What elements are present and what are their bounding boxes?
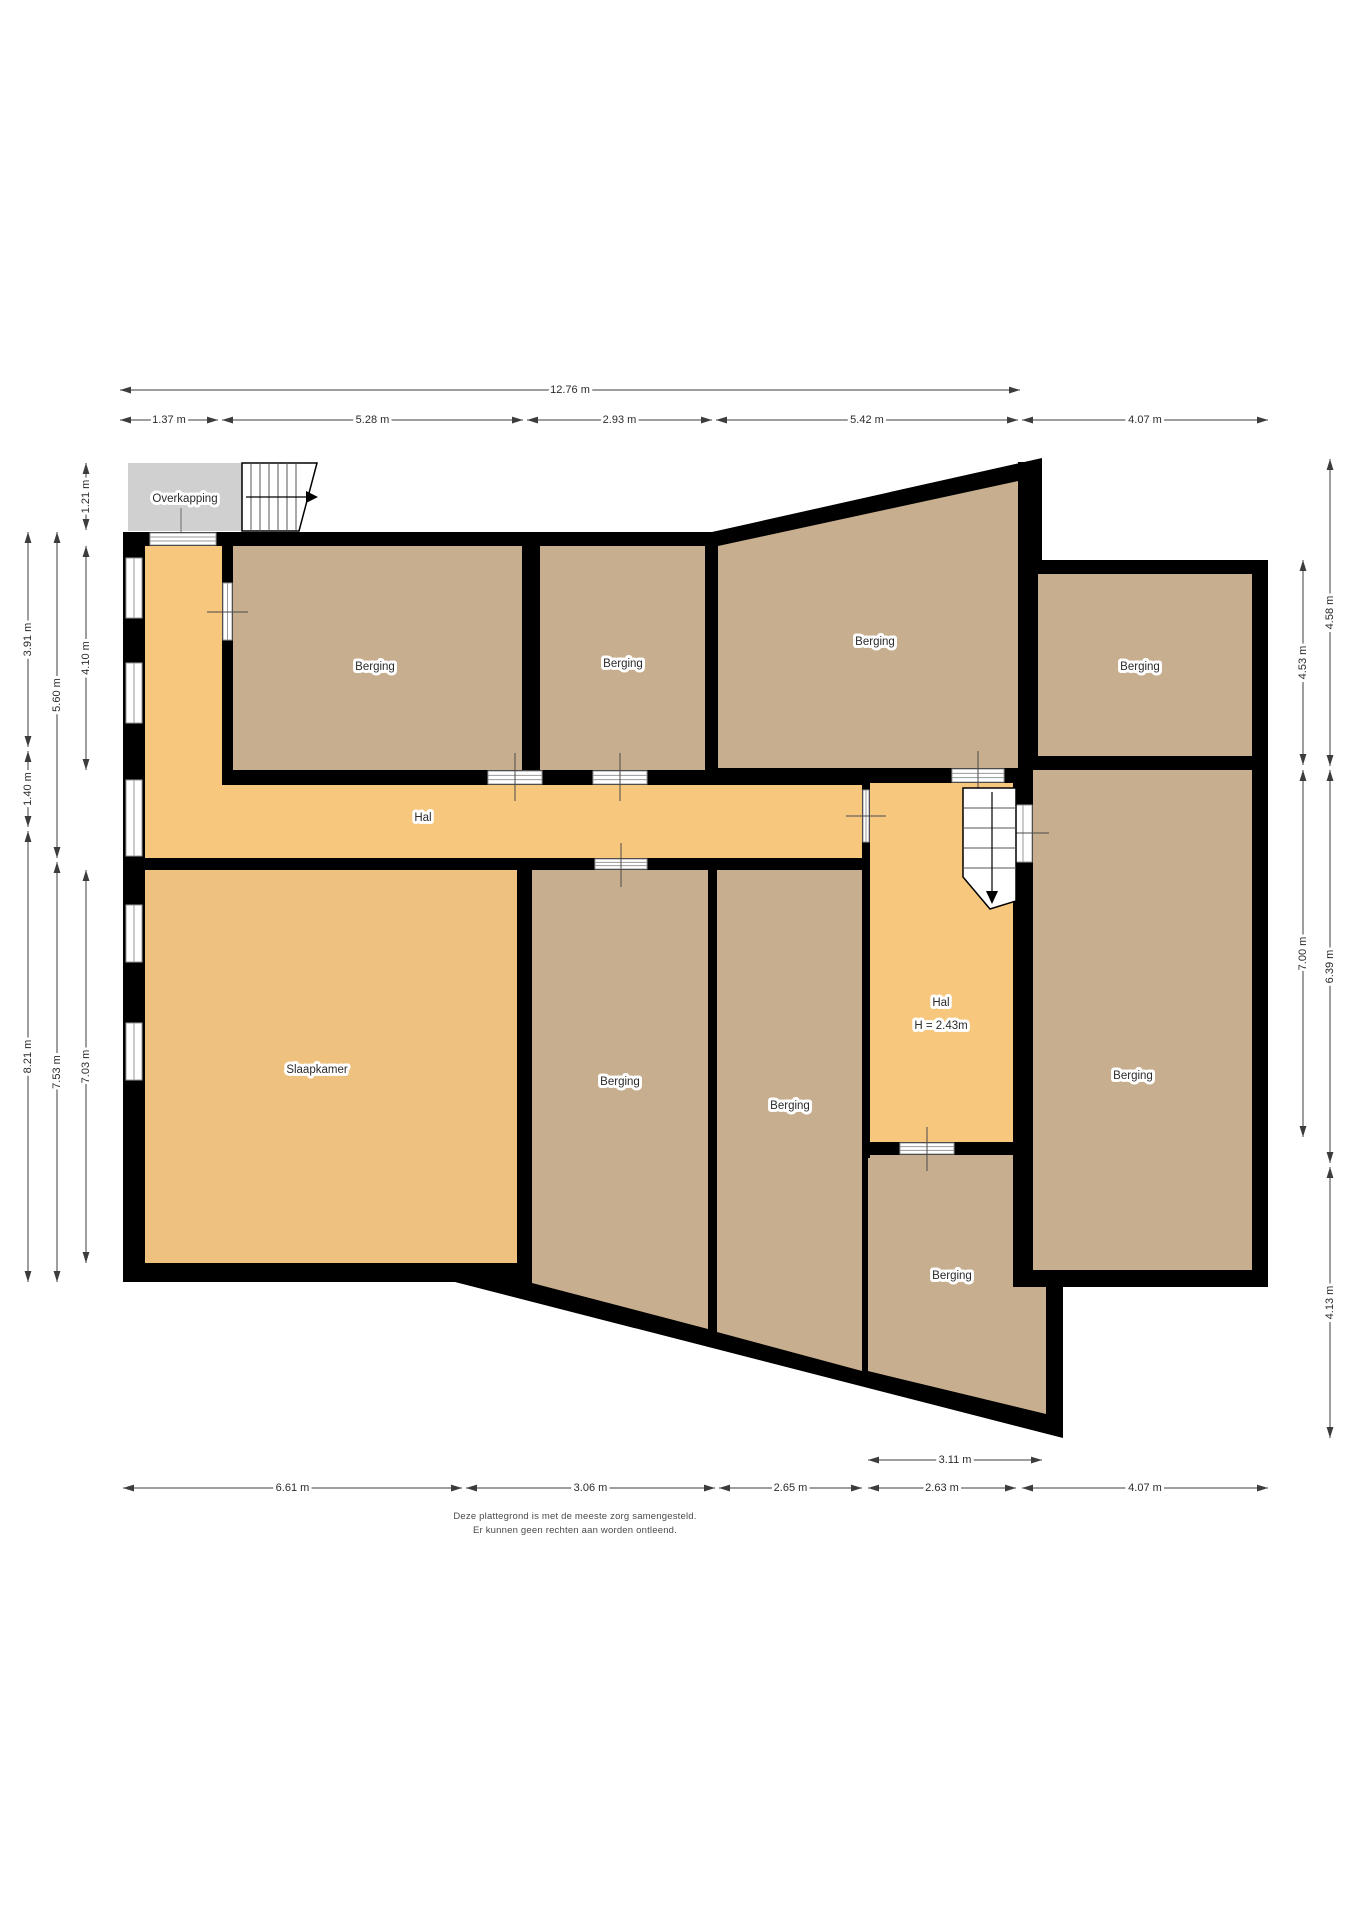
dim-left-391-arrow-bottom	[25, 736, 32, 747]
dim-bottom-4-label-arrow-right	[1005, 1485, 1016, 1492]
dim-bottom-311-label-arrow-right	[1031, 1457, 1042, 1464]
dim-bottom-5-label: 4.07 m	[1128, 1482, 1162, 1494]
dim-top-2-arrow-left	[222, 417, 233, 424]
dim-left-140-arrow-bottom	[25, 816, 32, 827]
dim-bottom-3-arrow-left	[719, 1485, 730, 1492]
dim-left-121-label: 1.21 m	[80, 480, 92, 514]
footer-disclaimer-line1: Deze plattegrond is met de meeste zorg s…	[0, 1511, 1150, 1522]
dim-right-453-arrow-bottom	[1300, 754, 1307, 765]
dim-bottom-5-arrow-left	[1022, 1485, 1033, 1492]
room-berging-center-label: Berging	[600, 1076, 640, 1088]
dim-left-703-arrow-bottom	[83, 1252, 90, 1263]
floorplan-svg: BergingBergingBergingBergingBergingHalHa…	[0, 0, 1358, 1920]
room-berging-right-middle-label: Berging	[1113, 1070, 1153, 1082]
room-berging-top-left-label: Berging	[355, 661, 395, 673]
stairs-entrance-direction-arrowhead	[306, 491, 318, 503]
dim-left-560-arrow-bottom	[54, 847, 61, 858]
dim-left-560-label: 5.60 m	[51, 678, 63, 712]
dim-top-1-label: 1.37 m	[152, 414, 186, 426]
dim-right-413-label: 4.13 m	[1324, 1286, 1336, 1320]
dim-right-413-arrow-top	[1327, 1167, 1334, 1178]
dim-left-140-arrow-top	[25, 751, 32, 762]
dim-left-821-arrow-top	[25, 831, 32, 842]
wall-b2-sloped	[705, 546, 718, 785]
room-hal-stairwell-label2: H = 2.43m	[914, 1020, 967, 1032]
overkapping-label: Overkapping	[152, 493, 217, 505]
room-slaapkamer-label: Slaapkamer	[286, 1064, 348, 1076]
wall-rightmiddle-bottom	[1013, 1270, 1268, 1287]
dim-left-753-arrow-bottom	[54, 1271, 61, 1282]
dim-bottom-3-label-arrow-right	[851, 1485, 862, 1492]
dim-top-4-label-arrow-right	[1007, 417, 1018, 424]
dim-right-700-label: 7.00 m	[1297, 937, 1309, 971]
dim-bottom-3-label: 2.65 m	[774, 1482, 808, 1494]
room-hal-corridor-label: Hal	[414, 812, 431, 824]
wall-corridor-bottom	[145, 858, 870, 870]
room-berging-right-middle	[1033, 770, 1252, 1270]
wall-sloped-wing	[1018, 462, 1042, 574]
dim-top-2-label: 5.28 m	[356, 414, 390, 426]
dim-top-5-label-arrow-right	[1257, 417, 1268, 424]
dim-width-total-arrow-left	[120, 387, 131, 394]
wall-halstrip-east	[222, 546, 233, 785]
dim-left-560-arrow-top	[54, 532, 61, 543]
dim-top-4-arrow-left	[716, 417, 727, 424]
entrance-door	[150, 533, 216, 545]
wall-right-divider	[1018, 756, 1252, 770]
room-berging-center	[532, 870, 708, 1329]
dim-top-3-arrow-left	[527, 417, 538, 424]
dim-right-413-arrow-bottom	[1327, 1427, 1334, 1438]
wall-slaap-center	[517, 870, 532, 1288]
dim-right-458-label: 4.58 m	[1324, 596, 1336, 630]
room-berging-top-middle-label: Berging	[603, 658, 643, 670]
dim-bottom-4-arrow-left	[868, 1485, 879, 1492]
dim-left-753-arrow-top	[54, 862, 61, 873]
dim-right-458-arrow-top	[1327, 459, 1334, 470]
dim-bottom-1-arrow-left	[123, 1485, 134, 1492]
dim-bottom-1-label: 6.61 m	[276, 1482, 310, 1494]
room-berging-center-right	[717, 870, 862, 1371]
dim-bottom-311-arrow-left	[868, 1457, 879, 1464]
dim-top-3-label-arrow-right	[701, 417, 712, 424]
dim-left-121-arrow-top	[83, 463, 90, 474]
dim-top-1-arrow-left	[120, 417, 131, 424]
dim-bottom-2-arrow-left	[466, 1485, 477, 1492]
dim-left-410-arrow-bottom	[83, 759, 90, 770]
dim-left-410-label: 4.10 m	[80, 641, 92, 675]
dim-left-391-arrow-top	[25, 532, 32, 543]
dim-left-121-arrow-bottom	[83, 519, 90, 530]
room-berging-top-left	[233, 546, 522, 770]
dim-right-639-arrow-top	[1327, 770, 1334, 781]
dim-left-821-label: 8.21 m	[22, 1040, 34, 1074]
dim-bottom-1-label-arrow-right	[451, 1485, 462, 1492]
wall-b1-bottom	[222, 770, 530, 785]
dim-bottom-2-label-arrow-right	[704, 1485, 715, 1492]
room-hal-stairwell-label: Hal	[932, 997, 949, 1009]
dim-left-753-label: 7.53 m	[51, 1055, 63, 1089]
dim-right-458-arrow-bottom	[1327, 755, 1334, 766]
floorplan-page: BergingBergingBergingBergingBergingHalHa…	[0, 0, 1358, 1920]
room-berging-sloped-label: Berging	[855, 636, 895, 648]
dim-right-639-arrow-bottom	[1327, 1152, 1334, 1163]
dim-left-391-label: 3.91 m	[22, 623, 34, 657]
dim-bottom-5-label-arrow-right	[1257, 1485, 1268, 1492]
dim-left-821-arrow-bottom	[25, 1271, 32, 1282]
dim-top-4-label: 5.42 m	[850, 414, 884, 426]
dim-bottom-2-label: 3.06 m	[574, 1482, 608, 1494]
room-berging-right-top-label: Berging	[1120, 661, 1160, 673]
dim-right-700-arrow-bottom	[1300, 1126, 1307, 1137]
dim-top-5-arrow-left	[1022, 417, 1033, 424]
dim-top-3-label: 2.93 m	[603, 414, 637, 426]
room-berging-bottom-label: Berging	[932, 1270, 972, 1282]
dim-bottom-311-label: 3.11 m	[939, 1454, 972, 1466]
footer-disclaimer-line2: Er kunnen geen rechten aan worden ontlee…	[0, 1525, 1150, 1536]
dim-left-703-arrow-top	[83, 870, 90, 881]
dim-top-1-label-arrow-right	[207, 417, 218, 424]
wall-b1-b2	[522, 546, 540, 785]
dim-width-total-label-arrow-right	[1009, 387, 1020, 394]
dim-top-5-label: 4.07 m	[1128, 414, 1162, 426]
dim-right-453-arrow-top	[1300, 560, 1307, 571]
dim-bottom-4-label: 2.63 m	[925, 1482, 959, 1494]
dim-right-453-label: 4.53 m	[1297, 646, 1309, 680]
dim-right-639-label: 6.39 m	[1324, 950, 1336, 984]
dim-width-total-label: 12.76 m	[550, 384, 590, 396]
dim-left-140-label: 1.40 m	[22, 772, 34, 806]
dim-top-2-label-arrow-right	[512, 417, 523, 424]
wall-center-centerright	[708, 870, 717, 1335]
dim-left-410-arrow-top	[83, 546, 90, 557]
dim-right-700-arrow-top	[1300, 770, 1307, 781]
room-berging-center-right-label: Berging	[770, 1100, 810, 1112]
dim-left-703-label: 7.03 m	[80, 1050, 92, 1084]
